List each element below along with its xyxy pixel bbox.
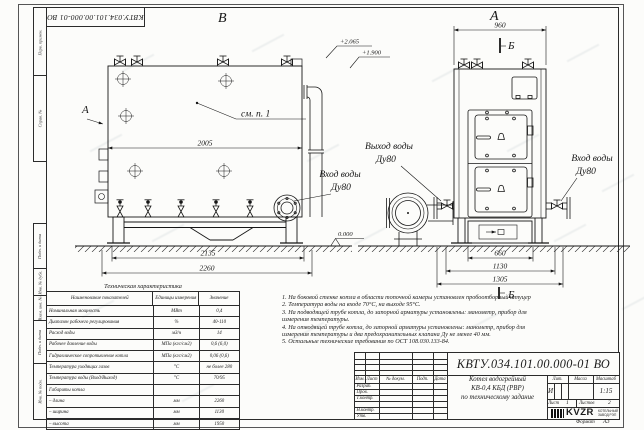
- cell-units: [154, 385, 199, 395]
- divider-line: [379, 353, 380, 419]
- divider-line: [547, 375, 548, 419]
- cell-name: Номинальная мощность: [47, 306, 154, 316]
- note-line: 5. Остальные технические требования по О…: [282, 338, 616, 345]
- frame-field-inv-podl: Инв. № подл.: [33, 363, 47, 420]
- cell-value: [200, 385, 239, 395]
- cell-name: – высота: [47, 419, 154, 429]
- sheet-value: 1: [566, 400, 569, 406]
- format-value: А3: [603, 419, 610, 425]
- table-row: – ширинамм1130: [47, 407, 239, 418]
- cell-units: МПа (кгс/см2): [154, 351, 199, 361]
- role-tkontr: Т.контр.: [357, 396, 374, 401]
- table-row: Номинальная мощностьМВт0,4: [47, 305, 239, 316]
- table-row: – высотамм1950: [47, 418, 239, 429]
- cell-name: – длина: [47, 396, 154, 406]
- cell-units: МПа (кгс/см2): [154, 340, 199, 350]
- cell-units: м3/ч: [154, 329, 199, 339]
- divider-line: [547, 383, 619, 384]
- cell-name: Гидравлическое сопротивление котла: [47, 351, 154, 361]
- doc-number-text: КВТУ.034.101.00.000-01 ВО: [47, 13, 144, 22]
- drawing-sheet: Перв. примен. Справ. № Подп. и дата Инв.…: [0, 0, 644, 430]
- cell-name: Габариты котла: [47, 385, 154, 395]
- cell-name: Температура воды (Вход/Выход): [47, 374, 154, 384]
- role-prov: Пров.: [357, 390, 368, 395]
- table-row: Гидравлическое сопротивление котлаМПа (к…: [47, 350, 239, 361]
- table-row: Рабочее давление водыМПа (кгс/см2)0,6 (6…: [47, 339, 239, 350]
- frame-field-label: Инв. № подл.: [38, 379, 43, 403]
- cell-units: %: [154, 317, 199, 327]
- frame-field-podp-data-2: Подп. и дата: [33, 320, 47, 365]
- cell-value: 0,06 (0,6): [200, 351, 239, 361]
- spec-table-title: Техническая характеристика: [46, 283, 240, 291]
- role-razrab: Разраб.: [357, 384, 372, 389]
- cell-units: МВт: [154, 306, 199, 316]
- cell-value: 0,6 (6,0): [200, 340, 239, 350]
- note-line: 4. На отводящей трубе котла, до запорной…: [282, 324, 616, 331]
- cell-units: мм: [154, 396, 199, 406]
- mass-label: Масса: [568, 377, 593, 382]
- logo-caption-line: ЗАВОД РЭП: [598, 413, 618, 417]
- sheet-label: Лист: [548, 401, 559, 406]
- col-izm: Изм.: [355, 377, 365, 382]
- technical-characteristics-table: Техническая характеристика Наименование …: [46, 283, 240, 430]
- frame-field-inv-dubl: Инв. № дубл.: [33, 268, 47, 297]
- format-label: Формат: [576, 419, 595, 425]
- product-line: по техническому задание: [448, 394, 547, 403]
- kvzr-logo-icon: [551, 409, 564, 418]
- frame-field-label: Взам. инв. №: [38, 296, 43, 320]
- frame-field-perv-primen: Перв. примен.: [33, 7, 47, 77]
- col-list: Лист: [365, 377, 379, 382]
- technical-notes: 1. На боковой стенке котла в области топ…: [282, 294, 616, 346]
- cell-name: Рабочее давление воды: [47, 340, 154, 350]
- note-line: измерения температуры и два предохраните…: [282, 331, 616, 338]
- role-nkontr: Н.контр.: [357, 408, 375, 413]
- product-line: Котел водогрейный: [448, 376, 547, 385]
- table-row: Температура уходящих газов°Сне более 280: [47, 361, 239, 372]
- col-header-units: Единицы измерения: [153, 292, 199, 305]
- note-line: 3. На подводящей трубе котла, до запорно…: [282, 309, 616, 316]
- col-header-value: Значение: [199, 292, 239, 305]
- note-line: 2. Температура воды на входе 70°С, на вы…: [282, 301, 616, 308]
- col-ndokum: № докум.: [379, 377, 412, 382]
- frame-field-label: Подп. и дата: [38, 234, 43, 259]
- spec-table-grid: Наименование показателей Единицы измерен…: [46, 291, 240, 430]
- divider-line: [433, 353, 434, 419]
- lit-value: И: [547, 387, 554, 395]
- col-podp: Подп.: [412, 377, 433, 382]
- cell-name: Температура уходящих газов: [47, 362, 154, 372]
- cell-value: 40-110: [200, 317, 239, 327]
- table-header-row: Наименование показателей Единицы измерен…: [47, 292, 239, 305]
- frame-field-podp-data-1: Подп. и дата: [33, 223, 47, 270]
- cell-value: 70/95: [200, 374, 239, 384]
- frame-field-label: Подп. и дата: [38, 330, 43, 355]
- table-row: – длинамм2260: [47, 395, 239, 406]
- frame-field-vzam-inv: Взам. инв. №: [33, 295, 47, 322]
- cell-value: 2260: [200, 396, 239, 406]
- divider-line: [412, 353, 413, 419]
- divider-line: [554, 383, 555, 399]
- col-header-name: Наименование показателей: [47, 292, 153, 305]
- table-row: Габариты котла: [47, 384, 239, 395]
- doc-number: КВТУ.034.101.00.000-01 ВО: [448, 353, 619, 375]
- divider-line: [576, 399, 577, 407]
- role-utv: Утв.: [357, 414, 367, 419]
- frame-field-sprav-no: Справ. №: [33, 75, 47, 162]
- title-block: КВТУ.034.101.00.000-01 ВО Изм. Лист № до…: [354, 352, 620, 420]
- table-row: Диапазон рабочего регулирования%40-110: [47, 316, 239, 327]
- frame-field-label: Справ. №: [38, 110, 43, 128]
- sheets-value: 2: [608, 400, 611, 406]
- table-row: Расход водым3/ч14: [47, 328, 239, 339]
- cell-units: °С: [154, 374, 199, 384]
- cell-value: 1950: [200, 419, 239, 429]
- cell-name: Диапазон рабочего регулирования: [47, 317, 154, 327]
- kvzr-logo-caption: КОТЕЛЬНЫЙ ЗАВОД РЭП: [598, 409, 618, 417]
- kvzr-logo-text: KVZR: [566, 407, 594, 418]
- frame-field-label: Инв. № дубл.: [38, 271, 43, 295]
- lit-label: Лит.: [547, 377, 568, 382]
- sheets-label: Листов: [579, 401, 594, 406]
- top-rotated-doc-number: КВТУ.034.101.00.000-01 ВО: [46, 7, 145, 27]
- note-line: 1. На боковой стенке котла в области топ…: [282, 294, 616, 301]
- cell-value: не более 280: [200, 362, 239, 372]
- cell-value: 14: [200, 329, 239, 339]
- col-data: Дата: [433, 377, 447, 382]
- watermark: [622, 292, 644, 311]
- scale-value: 1:15: [593, 387, 619, 395]
- divider-line: [561, 383, 562, 399]
- cell-name: Расход воды: [47, 329, 154, 339]
- cell-units: мм: [154, 419, 199, 429]
- product-line: КВ-0,4 КБД (РВР): [448, 385, 547, 394]
- cell-units: мм: [154, 408, 199, 418]
- cell-value: 0,4: [200, 306, 239, 316]
- scale-label: Масштаб: [593, 377, 619, 382]
- cell-units: °С: [154, 362, 199, 372]
- cell-value: 1130: [200, 408, 239, 418]
- table-row: Температура воды (Вход/Выход)°С70/95: [47, 373, 239, 384]
- cell-name: – ширина: [47, 408, 154, 418]
- frame-field-label: Перв. примен.: [38, 29, 43, 55]
- product-name: Котел водогрейный КВ-0,4 КБД (РВР) по те…: [448, 376, 547, 402]
- note-line: измерения температуры.: [282, 316, 616, 323]
